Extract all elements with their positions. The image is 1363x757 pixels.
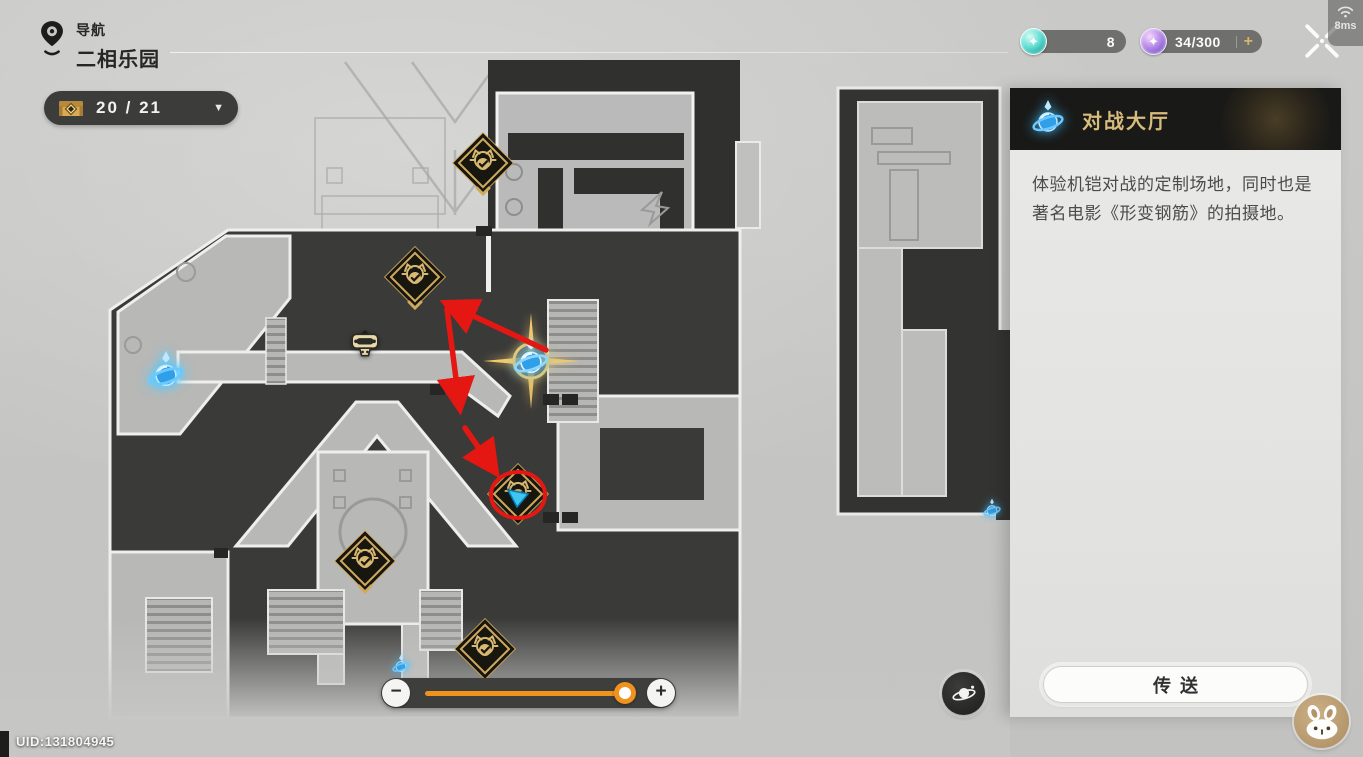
page-title-location: 二相乐园 xyxy=(76,43,160,72)
space-anchor-icon xyxy=(511,337,551,381)
map-marker-enemy[interactable] xyxy=(454,134,512,192)
map-fragment-right xyxy=(838,88,1010,520)
chest-counter-dropdown[interactable]: 20 / 21 ▼ xyxy=(44,91,238,125)
space-anchor-icon xyxy=(1030,99,1066,139)
map-marker-npc-robot[interactable] xyxy=(349,330,381,360)
location-pin-icon xyxy=(40,20,64,56)
uid-label: UID:131804945 xyxy=(16,734,114,749)
space-anchor-icon xyxy=(982,498,1002,520)
currency-trailblaze-power[interactable]: ✦ 8 xyxy=(1022,30,1126,53)
teleport-button[interactable]: 传送 xyxy=(1043,666,1308,703)
currency-reserved-power[interactable]: ✦ 34/300 + xyxy=(1142,30,1262,53)
zoom-slider-knob[interactable] xyxy=(614,682,636,704)
zoom-slider-track[interactable] xyxy=(425,691,633,696)
enemy-face-icon xyxy=(400,261,430,291)
map-marker-enemy[interactable] xyxy=(336,532,394,590)
map-marker-space-anchor-small[interactable] xyxy=(982,498,1002,520)
robot-npc-icon xyxy=(349,330,381,360)
assistant-rabbit-button[interactable] xyxy=(1294,695,1349,748)
zoom-in-button[interactable]: + xyxy=(647,679,675,707)
nav-header: 导航 二相乐园 xyxy=(40,20,160,72)
location-info-panel: 对战大厅 体验机铠对战的定制场地，同时也是著名电影《形变钢筋》的拍摄地。 传送 xyxy=(1010,88,1341,717)
ping-value: 8ms xyxy=(1334,20,1356,32)
panel-header: 对战大厅 xyxy=(1010,88,1341,150)
reserved-power-icon: ✦ xyxy=(1140,28,1167,55)
map-marker-enemy[interactable] xyxy=(386,248,444,306)
chest-icon xyxy=(58,97,84,119)
chest-counter-value: 20 / 21 xyxy=(96,98,162,118)
chevron-down-icon: ▼ xyxy=(213,102,224,114)
rabbit-face-icon xyxy=(1302,703,1342,741)
map-marker-space-anchor[interactable] xyxy=(146,350,186,394)
trailblaze-power-value: 8 xyxy=(1107,34,1126,50)
space-anchor-icon xyxy=(391,654,411,676)
add-currency-button[interactable]: + xyxy=(1237,33,1262,51)
reserved-power-value: 34/300 xyxy=(1175,34,1221,50)
level-down-arrow-icon xyxy=(506,487,530,509)
panel-title: 对战大厅 xyxy=(1082,105,1170,134)
corner-notch xyxy=(0,731,9,757)
map-marker-enemy[interactable] xyxy=(456,620,514,678)
chevron-down-icon xyxy=(475,186,491,196)
space-anchor-icon xyxy=(146,350,186,394)
trailblaze-power-icon: ✦ xyxy=(1020,28,1047,55)
map-marker-space-anchor-selected[interactable] xyxy=(483,313,579,409)
nav-label: 导航 xyxy=(76,20,160,40)
anchor-list-button[interactable] xyxy=(942,672,985,715)
header-divider xyxy=(170,52,1008,53)
map-marker-space-anchor-small[interactable] xyxy=(391,654,411,676)
map-marker-enemy[interactable] xyxy=(489,465,547,523)
enemy-face-icon xyxy=(468,147,498,177)
map-zoom-slider[interactable]: − + xyxy=(381,678,676,708)
location-description: 体验机铠对战的定制场地，同时也是著名电影《形变钢筋》的拍摄地。 xyxy=(1010,150,1341,248)
zoom-out-button[interactable]: − xyxy=(382,679,410,707)
planet-orbit-icon xyxy=(951,682,977,706)
wifi-icon xyxy=(1337,5,1354,18)
chevron-down-icon xyxy=(357,584,373,594)
enemy-face-icon xyxy=(350,545,380,575)
network-status: 8ms xyxy=(1328,0,1363,46)
enemy-face-icon xyxy=(470,633,500,663)
chevron-down-icon xyxy=(407,300,423,310)
